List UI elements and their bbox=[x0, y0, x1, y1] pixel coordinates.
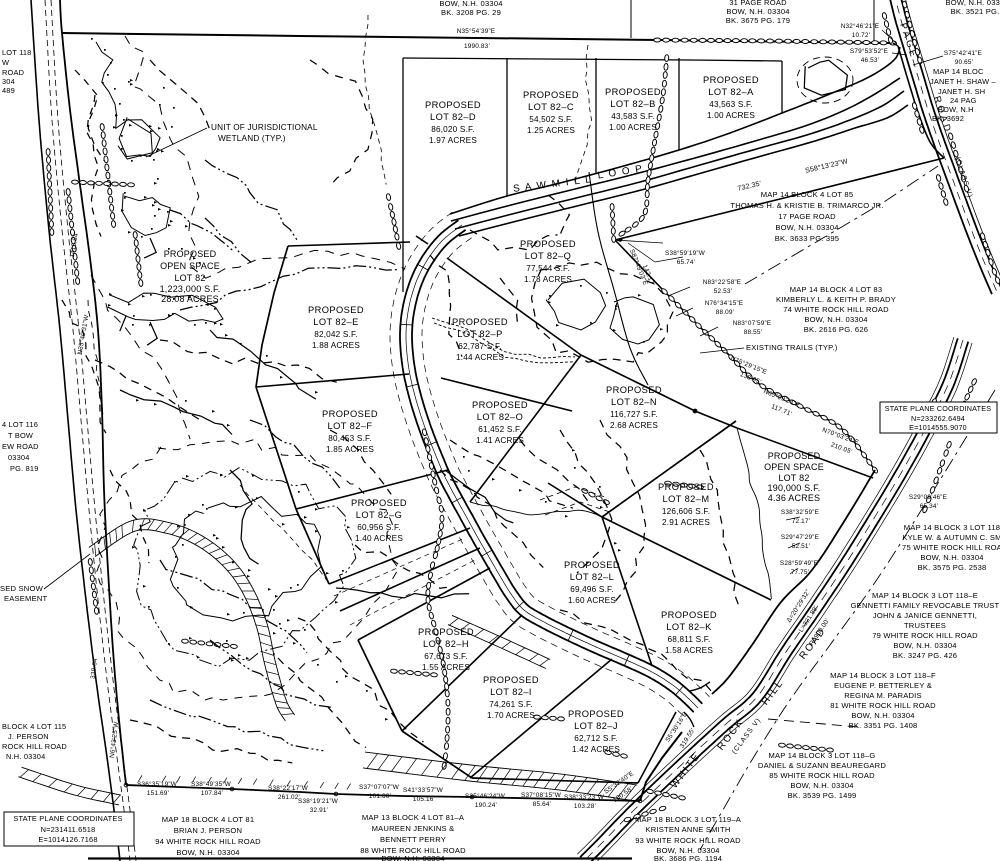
svg-text:PROPOSED: PROPOSED bbox=[658, 482, 714, 492]
svg-text:BK. 3351 PG. 1408: BK. 3351 PG. 1408 bbox=[849, 721, 918, 730]
svg-text:52.51’: 52.51’ bbox=[792, 543, 811, 550]
svg-text:BOW, N.H. 03304: BOW, N.H. 03304 bbox=[439, 0, 502, 8]
svg-text:1.41 ACRES: 1.41 ACRES bbox=[476, 436, 524, 445]
svg-text:J. PERSON: J. PERSON bbox=[8, 732, 49, 741]
svg-text:LOT 82: LOT 82 bbox=[174, 273, 205, 283]
svg-text:86,020 S.F.: 86,020 S.F. bbox=[431, 125, 475, 134]
svg-text:1.40 ACRES: 1.40 ACRES bbox=[355, 534, 403, 543]
svg-text:S28°59’49”E: S28°59’49”E bbox=[780, 559, 818, 567]
svg-text:105.16’: 105.16’ bbox=[413, 796, 436, 803]
svg-text:BK. 3247 PG. 426: BK. 3247 PG. 426 bbox=[893, 651, 957, 660]
svg-text:STATE PLANE COORDINATES: STATE PLANE COORDINATES bbox=[13, 814, 122, 823]
svg-text:ROCK HILL ROAD: ROCK HILL ROAD bbox=[2, 742, 67, 751]
svg-text:62,787 S.F.: 62,787 S.F. bbox=[458, 342, 502, 351]
svg-text:UNIT OF JURISDICTIONAL: UNIT OF JURISDICTIONAL bbox=[211, 123, 318, 132]
svg-text:STATE PLANE COORDINATES: STATE PLANE COORDINATES bbox=[885, 404, 991, 413]
svg-text:OPEN SPACE: OPEN SPACE bbox=[764, 462, 824, 472]
svg-text:DANIEL & SUZANN BEAUREGARD: DANIEL & SUZANN BEAUREGARD bbox=[758, 761, 886, 770]
svg-text:489: 489 bbox=[2, 86, 15, 95]
svg-text:151.69’: 151.69’ bbox=[147, 790, 170, 797]
svg-text:BOW, N.H. 03304: BOW, N.H. 03304 bbox=[893, 641, 956, 650]
svg-text:PROPOSED: PROPOSED bbox=[523, 90, 579, 100]
svg-text:MAP 14 BLOCK 4 LOT 85: MAP 14 BLOCK 4 LOT 85 bbox=[761, 190, 854, 199]
svg-text:79 WHITE ROCK HILL ROAD: 79 WHITE ROCK HILL ROAD bbox=[872, 631, 978, 640]
svg-text:BENNETT PERRY: BENNETT PERRY bbox=[380, 835, 446, 844]
svg-text:KYLE W. & AUTUMN C. SM: KYLE W. & AUTUMN C. SM bbox=[902, 533, 1000, 542]
svg-text:JANET H. SH: JANET H. SH bbox=[938, 87, 985, 96]
svg-text:EW ROAD: EW ROAD bbox=[2, 442, 39, 451]
svg-text:61,452 S.F.: 61,452 S.F. bbox=[478, 425, 522, 434]
svg-text:S38°59’19”W: S38°59’19”W bbox=[665, 249, 706, 257]
svg-text:PROPOSED: PROPOSED bbox=[322, 409, 378, 419]
svg-text:1990.83’: 1990.83’ bbox=[464, 43, 491, 50]
svg-text:BK. 3208 PG. 29: BK. 3208 PG. 29 bbox=[441, 8, 501, 17]
svg-text:85 WHITE ROCK HILL ROAD: 85 WHITE ROCK HILL ROAD bbox=[769, 771, 875, 780]
svg-text:2.68 ACRES: 2.68 ACRES bbox=[610, 421, 658, 430]
svg-text:LOT 82–N: LOT 82–N bbox=[611, 397, 657, 407]
svg-text:94 WHITE ROCK HILL ROAD: 94 WHITE ROCK HILL ROAD bbox=[155, 837, 261, 846]
svg-text:N83°07’59”E: N83°07’59”E bbox=[733, 319, 772, 327]
svg-text:EXISTING TRAILS (TYP.): EXISTING TRAILS (TYP.) bbox=[746, 343, 838, 352]
svg-text:88.55’: 88.55’ bbox=[744, 329, 763, 336]
svg-text:65.34’: 65.34’ bbox=[920, 503, 939, 510]
svg-text:BK. 3675 PG. 179: BK. 3675 PG. 179 bbox=[726, 16, 790, 25]
svg-text:PROPOSED: PROPOSED bbox=[768, 451, 821, 461]
svg-text:N=233262.6494: N=233262.6494 bbox=[911, 414, 965, 423]
svg-text:80,453 S.F.: 80,453 S.F. bbox=[328, 434, 372, 443]
svg-text:LOT 82–B: LOT 82–B bbox=[610, 99, 655, 109]
svg-text:BOW, N.H. 03304: BOW, N.H. 03304 bbox=[920, 553, 983, 562]
svg-text:E=1014555.9070: E=1014555.9070 bbox=[909, 423, 967, 432]
svg-text:2.91 ACRES: 2.91 ACRES bbox=[662, 518, 710, 527]
svg-text:31 PAGE ROAD: 31 PAGE ROAD bbox=[729, 0, 787, 7]
svg-text:PROPOSED: PROPOSED bbox=[452, 317, 508, 327]
svg-text:T BOW: T BOW bbox=[8, 431, 33, 440]
svg-text:1.88 ACRES: 1.88 ACRES bbox=[312, 341, 360, 350]
svg-text:THOMAS H. & KRISTIE B. TRIMARC: THOMAS H. & KRISTIE B. TRIMARCO JR. bbox=[730, 201, 883, 210]
svg-text:BOW, N.H. 03304: BOW, N.H. 03304 bbox=[851, 711, 914, 720]
svg-text:JOHN & JANICE GENNETTI,: JOHN & JANICE GENNETTI, bbox=[873, 611, 977, 620]
svg-text:72.17’: 72.17’ bbox=[792, 518, 811, 525]
svg-text:BRIAN J. PERSON: BRIAN J. PERSON bbox=[174, 826, 242, 835]
svg-text:PROPOSED: PROPOSED bbox=[661, 610, 717, 620]
svg-text:107.84’: 107.84’ bbox=[201, 790, 224, 797]
svg-text:PROPOSED: PROPOSED bbox=[568, 709, 624, 719]
svg-text:103.28’: 103.28’ bbox=[574, 803, 597, 810]
svg-text:1.42 ACRES: 1.42 ACRES bbox=[572, 745, 620, 754]
svg-text:32.91’: 32.91’ bbox=[310, 807, 329, 814]
svg-text:EUGENE P. BETTERLEY &: EUGENE P. BETTERLEY & bbox=[834, 681, 932, 690]
svg-text:N35°54’39”E: N35°54’39”E bbox=[457, 27, 496, 35]
svg-text:BOW, N.H. 03304: BOW, N.H. 03304 bbox=[726, 7, 789, 16]
svg-text:EASEMENT: EASEMENT bbox=[4, 594, 48, 603]
svg-text:4 LOT 116: 4 LOT 116 bbox=[2, 420, 38, 429]
svg-text:MAP 14 BLOCK 4 LOT 83: MAP 14 BLOCK 4 LOT 83 bbox=[790, 285, 883, 294]
svg-text:75 WHITE ROCK HILL ROA: 75 WHITE ROCK HILL ROA bbox=[902, 543, 1000, 552]
svg-text:S38°32’59”E: S38°32’59”E bbox=[781, 508, 819, 516]
svg-text:1.44 ACRES: 1.44 ACRES bbox=[456, 353, 504, 362]
svg-text:KIMBERLY L. & KEITH P. BRADY: KIMBERLY L. & KEITH P. BRADY bbox=[776, 295, 896, 304]
svg-text:24 PAG: 24 PAG bbox=[950, 96, 977, 105]
svg-text:101.60’: 101.60’ bbox=[369, 793, 392, 800]
svg-text:03304: 03304 bbox=[8, 453, 30, 462]
svg-text:BLOCK 4 LOT 115: BLOCK 4 LOT 115 bbox=[2, 722, 66, 731]
svg-text:4.36 ACRES: 4.36 ACRES bbox=[768, 493, 821, 503]
svg-text:LOT 82–K: LOT 82–K bbox=[666, 622, 712, 632]
svg-text:74,261 S.F.: 74,261 S.F. bbox=[489, 700, 533, 709]
svg-text:1.60 ACRES: 1.60 ACRES bbox=[568, 596, 616, 605]
svg-text:MAP 14 BLOCK 3 LOT 118–F: MAP 14 BLOCK 3 LOT 118–F bbox=[830, 671, 936, 680]
svg-text:N=231411.6518: N=231411.6518 bbox=[41, 825, 96, 834]
svg-text:190,000 S.F.: 190,000 S.F. bbox=[768, 483, 821, 493]
svg-text:PROPOSED: PROPOSED bbox=[308, 305, 364, 315]
svg-text:JANET H. SHAW –: JANET H. SHAW – bbox=[930, 77, 997, 86]
svg-text:LOT 82–H: LOT 82–H bbox=[423, 639, 469, 649]
svg-text:1.70 ACRES: 1.70 ACRES bbox=[487, 711, 535, 720]
svg-text:SED SNOW: SED SNOW bbox=[0, 584, 44, 593]
svg-text:62,712 S.F.: 62,712 S.F. bbox=[574, 734, 618, 743]
svg-text:S29°47’29”E: S29°47’29”E bbox=[781, 533, 819, 541]
svg-text:PROPOSED: PROPOSED bbox=[425, 100, 481, 110]
svg-text:S38°22’17”W: S38°22’17”W bbox=[268, 784, 309, 792]
svg-text:BOW, N.H. 03304: BOW, N.H. 03304 bbox=[804, 315, 867, 324]
svg-text:93 WHITE ROCK HILL ROAD: 93 WHITE ROCK HILL ROAD bbox=[635, 836, 741, 845]
svg-text:S38°19’21”W: S38°19’21”W bbox=[298, 797, 339, 805]
svg-text:BOW, N.H. 03304: BOW, N.H. 03304 bbox=[790, 781, 853, 790]
svg-text:PROPOSED: PROPOSED bbox=[703, 75, 759, 85]
svg-text:LOT 82–Q: LOT 82–Q bbox=[525, 251, 571, 261]
svg-text:PROPOSED: PROPOSED bbox=[164, 249, 217, 259]
svg-text:190.24’: 190.24’ bbox=[475, 802, 498, 809]
svg-text:BK. 3686 PG. 1194: BK. 3686 PG. 1194 bbox=[654, 854, 722, 861]
svg-text:82,042 S.F.: 82,042 S.F. bbox=[314, 330, 358, 339]
svg-text:1.25 ACRES: 1.25 ACRES bbox=[527, 126, 575, 135]
svg-text:116,727 S.F.: 116,727 S.F. bbox=[610, 410, 658, 419]
svg-text:PROPOSED: PROPOSED bbox=[483, 675, 539, 685]
svg-text:PG. 819: PG. 819 bbox=[10, 464, 39, 473]
svg-text:77,544 S.F.: 77,544 S.F. bbox=[526, 264, 570, 273]
svg-text:GENNETTI FAMILY REVOCABLE TRUS: GENNETTI FAMILY REVOCABLE TRUST bbox=[851, 601, 1000, 610]
svg-text:1.00 ACRES: 1.00 ACRES bbox=[609, 123, 657, 132]
svg-text:BK. 2616 PG. 626: BK. 2616 PG. 626 bbox=[804, 325, 868, 334]
svg-text:BK. 3575 PG. 2538: BK. 3575 PG. 2538 bbox=[918, 563, 987, 572]
svg-text:LOT 82–E: LOT 82–E bbox=[313, 317, 358, 327]
svg-text:S38°33’23”W: S38°33’23”W bbox=[564, 793, 605, 801]
svg-text:LOT 82–C: LOT 82–C bbox=[528, 102, 574, 112]
svg-text:LOT 82–F: LOT 82–F bbox=[328, 421, 373, 431]
svg-text:N83°22’58”E: N83°22’58”E bbox=[703, 278, 742, 286]
svg-text:LOT 82–A: LOT 82–A bbox=[708, 87, 754, 97]
svg-text:MAP 18 BLOCK 3 LOT 119–A: MAP 18 BLOCK 3 LOT 119–A bbox=[635, 815, 742, 824]
svg-text:1.58 ACRES: 1.58 ACRES bbox=[665, 646, 713, 655]
svg-text:1.00 ACRES: 1.00 ACRES bbox=[707, 111, 755, 120]
svg-text:BK. 3521 PG.: BK. 3521 PG. bbox=[951, 7, 1000, 16]
svg-text:E=1014126.7168: E=1014126.7168 bbox=[38, 835, 97, 844]
svg-text:74 WHITE ROCK HILL ROAD: 74 WHITE ROCK HILL ROAD bbox=[783, 305, 889, 314]
svg-text:MAP 14 BLOC: MAP 14 BLOC bbox=[933, 67, 984, 76]
svg-text:1,223,000 S.F.: 1,223,000 S.F. bbox=[160, 284, 221, 294]
svg-text:N.H. 03304: N.H. 03304 bbox=[6, 752, 45, 761]
svg-text:65.74’: 65.74’ bbox=[677, 259, 696, 266]
svg-text:10.72’: 10.72’ bbox=[852, 32, 871, 39]
svg-text:LOT 82: LOT 82 bbox=[778, 473, 809, 483]
svg-text:LOT 82–O: LOT 82–O bbox=[477, 412, 523, 422]
svg-text:PROPOSED: PROPOSED bbox=[472, 400, 528, 410]
svg-text:85.64’: 85.64’ bbox=[533, 801, 552, 808]
svg-text:PROPOSED: PROPOSED bbox=[606, 385, 662, 395]
svg-text:S38°49’35”W: S38°49’35”W bbox=[191, 780, 232, 788]
svg-text:54,502 S.F.: 54,502 S.F. bbox=[529, 115, 573, 124]
svg-text:67,673 S.F.: 67,673 S.F. bbox=[424, 652, 468, 661]
svg-text:BOW, N.H. 0330: BOW, N.H. 0330 bbox=[946, 0, 1000, 7]
svg-text:MAP 14 BLOCK 3 LOT 118–G: MAP 14 BLOCK 3 LOT 118–G bbox=[769, 751, 876, 760]
svg-text:BK. 3539 PG. 1499: BK. 3539 PG. 1499 bbox=[788, 791, 857, 800]
svg-text:S35°46’24”W: S35°46’24”W bbox=[465, 792, 506, 800]
svg-text:PROPOSED: PROPOSED bbox=[605, 87, 661, 97]
svg-text:1.85 ACRES: 1.85 ACRES bbox=[326, 445, 374, 454]
svg-text:PROPOSED: PROPOSED bbox=[351, 498, 407, 508]
svg-text:BK. 3633 PG. 395: BK. 3633 PG. 395 bbox=[775, 234, 839, 243]
svg-text:304: 304 bbox=[2, 77, 15, 86]
svg-text:MAP 14 BLOCK 3 LOT 118: MAP 14 BLOCK 3 LOT 118 bbox=[904, 523, 1000, 532]
svg-text:BOW, N.H. 03304: BOW, N.H. 03304 bbox=[775, 223, 838, 232]
svg-text:S79°53’52”E: S79°53’52”E bbox=[850, 47, 888, 55]
svg-text:OPEN SPACE: OPEN SPACE bbox=[160, 261, 220, 271]
svg-text:WETLAND (TYP.): WETLAND (TYP.) bbox=[218, 134, 286, 143]
svg-text:MAP 18 BLOCK 4 LOT 81: MAP 18 BLOCK 4 LOT 81 bbox=[162, 815, 255, 824]
svg-text:77.75’: 77.75’ bbox=[791, 569, 810, 576]
svg-text:N76°34’15”E: N76°34’15”E bbox=[705, 299, 744, 307]
svg-text:LOT 82–P: LOT 82–P bbox=[457, 329, 502, 339]
svg-text:88.09’: 88.09’ bbox=[716, 309, 735, 316]
svg-text:REGINA M. PARADIS: REGINA M. PARADIS bbox=[844, 691, 922, 700]
svg-text:LOT 82–D: LOT 82–D bbox=[430, 112, 476, 122]
svg-text:1.78 ACRES: 1.78 ACRES bbox=[524, 275, 572, 284]
svg-text:LOT 82–J: LOT 82–J bbox=[574, 721, 618, 731]
svg-text:1.55 ACRES: 1.55 ACRES bbox=[422, 663, 470, 672]
svg-text:68,811 S.F.: 68,811 S.F. bbox=[667, 635, 710, 644]
svg-text:PROPOSED: PROPOSED bbox=[520, 239, 576, 249]
svg-text:17 PAGE ROAD: 17 PAGE ROAD bbox=[778, 212, 836, 221]
svg-text:S37°08’15”W: S37°08’15”W bbox=[521, 791, 562, 799]
svg-text:LOT 82–M: LOT 82–M bbox=[663, 494, 710, 504]
svg-text:81 WHITE ROCK HILL ROAD: 81 WHITE ROCK HILL ROAD bbox=[830, 701, 936, 710]
svg-text:LOT 82–I: LOT 82–I bbox=[490, 687, 532, 697]
svg-text:43,563 S.F.: 43,563 S.F. bbox=[709, 100, 753, 109]
svg-text:S75°42’41”E: S75°42’41”E bbox=[944, 49, 982, 57]
svg-text:60,956 S.F.: 60,956 S.F. bbox=[357, 523, 401, 532]
svg-text:52.53’: 52.53’ bbox=[714, 288, 733, 295]
svg-text:46.53’: 46.53’ bbox=[861, 57, 880, 64]
svg-text:TRUSTEES: TRUSTEES bbox=[904, 621, 946, 630]
svg-text:MAUREEN JENKINS &: MAUREEN JENKINS & bbox=[372, 824, 455, 833]
svg-text:MAP 14 BLOCK 3 LOT 118–E: MAP 14 BLOCK 3 LOT 118–E bbox=[872, 591, 978, 600]
svg-text:LOT 82–L: LOT 82–L bbox=[570, 572, 614, 582]
svg-text:90.65’: 90.65’ bbox=[955, 59, 974, 66]
svg-text:1.97 ACRES: 1.97 ACRES bbox=[429, 136, 477, 145]
svg-text:S29°09’46”E: S29°09’46”E bbox=[909, 493, 947, 501]
svg-text:KRISTEN ANNE SMITH: KRISTEN ANNE SMITH bbox=[645, 825, 730, 834]
svg-text:43,583 S.F.: 43,583 S.F. bbox=[611, 112, 655, 121]
svg-text:BOW, N.H. 03304: BOW, N.H. 03304 bbox=[176, 848, 239, 857]
svg-text:MAP 13 BLOCK 4 LOT 81–A: MAP 13 BLOCK 4 LOT 81–A bbox=[362, 813, 465, 822]
svg-text:PROPOSED: PROPOSED bbox=[564, 560, 620, 570]
svg-text:ROAD: ROAD bbox=[2, 68, 24, 77]
svg-text:LOT 118: LOT 118 bbox=[2, 48, 31, 57]
svg-text:S37°07’07”W: S37°07’07”W bbox=[359, 783, 400, 791]
svg-text:S36°35’19”W: S36°35’19”W bbox=[137, 780, 178, 788]
svg-text:W: W bbox=[2, 58, 9, 67]
svg-text:S41°33’57”W: S41°33’57”W bbox=[403, 786, 444, 794]
svg-text:LOT 82–G: LOT 82–G bbox=[356, 510, 402, 520]
svg-text:126,606 S.F.: 126,606 S.F. bbox=[662, 507, 710, 516]
svg-text:69,496 S.F.: 69,496 S.F. bbox=[570, 585, 614, 594]
svg-text:28.08 ACRES: 28.08 ACRES bbox=[161, 294, 219, 304]
svg-text:PROPOSED: PROPOSED bbox=[418, 627, 474, 637]
svg-text:N32°46’21”E: N32°46’21”E bbox=[841, 22, 880, 30]
